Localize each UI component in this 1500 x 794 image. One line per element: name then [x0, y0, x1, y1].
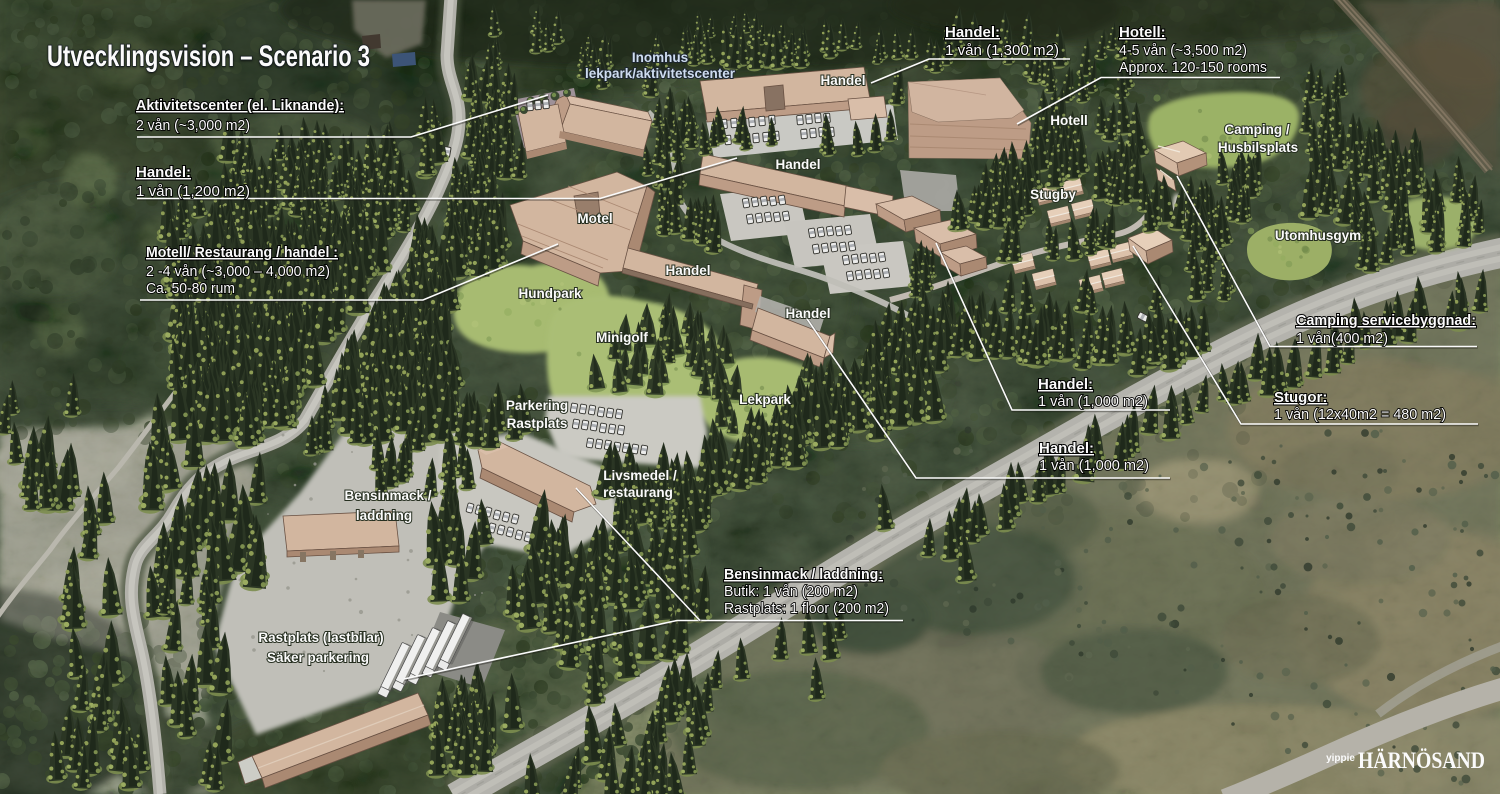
svg-text:Bensinmack /: Bensinmack / [344, 488, 431, 503]
svg-text:Parkering: Parkering [506, 398, 568, 413]
svg-text:Utvecklingsvision – Scenario 3: Utvecklingsvision – Scenario 3 [47, 40, 370, 73]
svg-text:Säker parkering: Säker parkering [267, 650, 369, 665]
svg-text:1 vån (1,000 m2): 1 vån (1,000 m2) [1038, 393, 1148, 410]
svg-text:Handel:: Handel: [1039, 440, 1094, 457]
svg-text:lekpark/aktivitetscenter: lekpark/aktivitetscenter [585, 66, 736, 81]
svg-text:4-5 vån (~3,500 m2): 4-5 vån (~3,500 m2) [1119, 42, 1247, 59]
svg-text:Camping /: Camping / [1224, 122, 1290, 137]
svg-text:Hotell:: Hotell: [1119, 24, 1166, 41]
svg-text:2 -4 vån (~3,000 – 4,000 m2): 2 -4 vån (~3,000 – 4,000 m2) [146, 263, 330, 280]
svg-text:Aktivitetscenter (el. Liknande: Aktivitetscenter (el. Liknande): [136, 97, 344, 114]
svg-text:Inomhus: Inomhus [632, 50, 688, 65]
svg-text:Butik: 1 vån (200 m2): Butik: 1 vån (200 m2) [724, 583, 858, 600]
svg-text:Stugor:: Stugor: [1274, 389, 1327, 406]
svg-text:restaurang: restaurang [603, 485, 673, 500]
svg-text:Handel:: Handel: [1038, 376, 1093, 393]
svg-text:1 vån (12x40m2 = 480 m2): 1 vån (12x40m2 = 480 m2) [1274, 406, 1446, 423]
svg-text:1 vån (1,000 m2): 1 vån (1,000 m2) [1039, 457, 1149, 474]
svg-text:2 vån (~3,000 m2): 2 vån (~3,000 m2) [136, 117, 250, 134]
svg-text:Rastplats: Rastplats [507, 416, 568, 431]
svg-text:1 vån (1,300 m2): 1 vån (1,300 m2) [945, 42, 1059, 59]
svg-text:Handel: Handel [665, 263, 710, 278]
svg-text:Rastplats: 1 floor (200 m2): Rastplats: 1 floor (200 m2) [724, 600, 889, 617]
svg-text:Approx. 120-150 rooms: Approx. 120-150 rooms [1119, 59, 1267, 76]
svg-text:Livsmedel /: Livsmedel / [603, 468, 677, 483]
svg-text:Handel: Handel [820, 73, 865, 88]
svg-text:Handel: Handel [785, 306, 830, 321]
svg-text:Bensinmack / laddning:: Bensinmack / laddning: [724, 566, 883, 583]
svg-text:Handel:: Handel: [136, 164, 191, 181]
svg-text:laddning: laddning [356, 508, 412, 523]
svg-text:Husbilsplats: Husbilsplats [1218, 140, 1298, 155]
svg-text:1 vån (1,200 m2): 1 vån (1,200 m2) [136, 183, 250, 200]
svg-text:yippie: yippie [1326, 753, 1355, 764]
svg-text:Minigolf: Minigolf [596, 330, 648, 345]
svg-text:Handel:: Handel: [945, 24, 1000, 41]
svg-text:Ca. 50-80 rum: Ca. 50-80 rum [146, 280, 235, 297]
svg-text:Motel: Motel [577, 211, 612, 226]
svg-text:Motell/ Restaurang / handel :: Motell/ Restaurang / handel : [146, 244, 338, 261]
svg-text:Camping servicebyggnad:: Camping servicebyggnad: [1296, 312, 1476, 329]
svg-text:Rastplats (lastbilar): Rastplats (lastbilar) [258, 630, 383, 645]
svg-text:Hotell: Hotell [1050, 113, 1088, 128]
svg-text:Hundpark: Hundpark [518, 286, 581, 301]
svg-text:1 vån(400 m2): 1 vån(400 m2) [1296, 330, 1388, 347]
svg-text:Utomhusgym: Utomhusgym [1275, 228, 1361, 243]
svg-text:Stugby: Stugby [1030, 187, 1076, 202]
svg-text:Handel: Handel [775, 157, 820, 172]
svg-text:HÄRNÖSAND: HÄRNÖSAND [1358, 748, 1485, 773]
svg-text:Lekpark: Lekpark [739, 392, 791, 407]
